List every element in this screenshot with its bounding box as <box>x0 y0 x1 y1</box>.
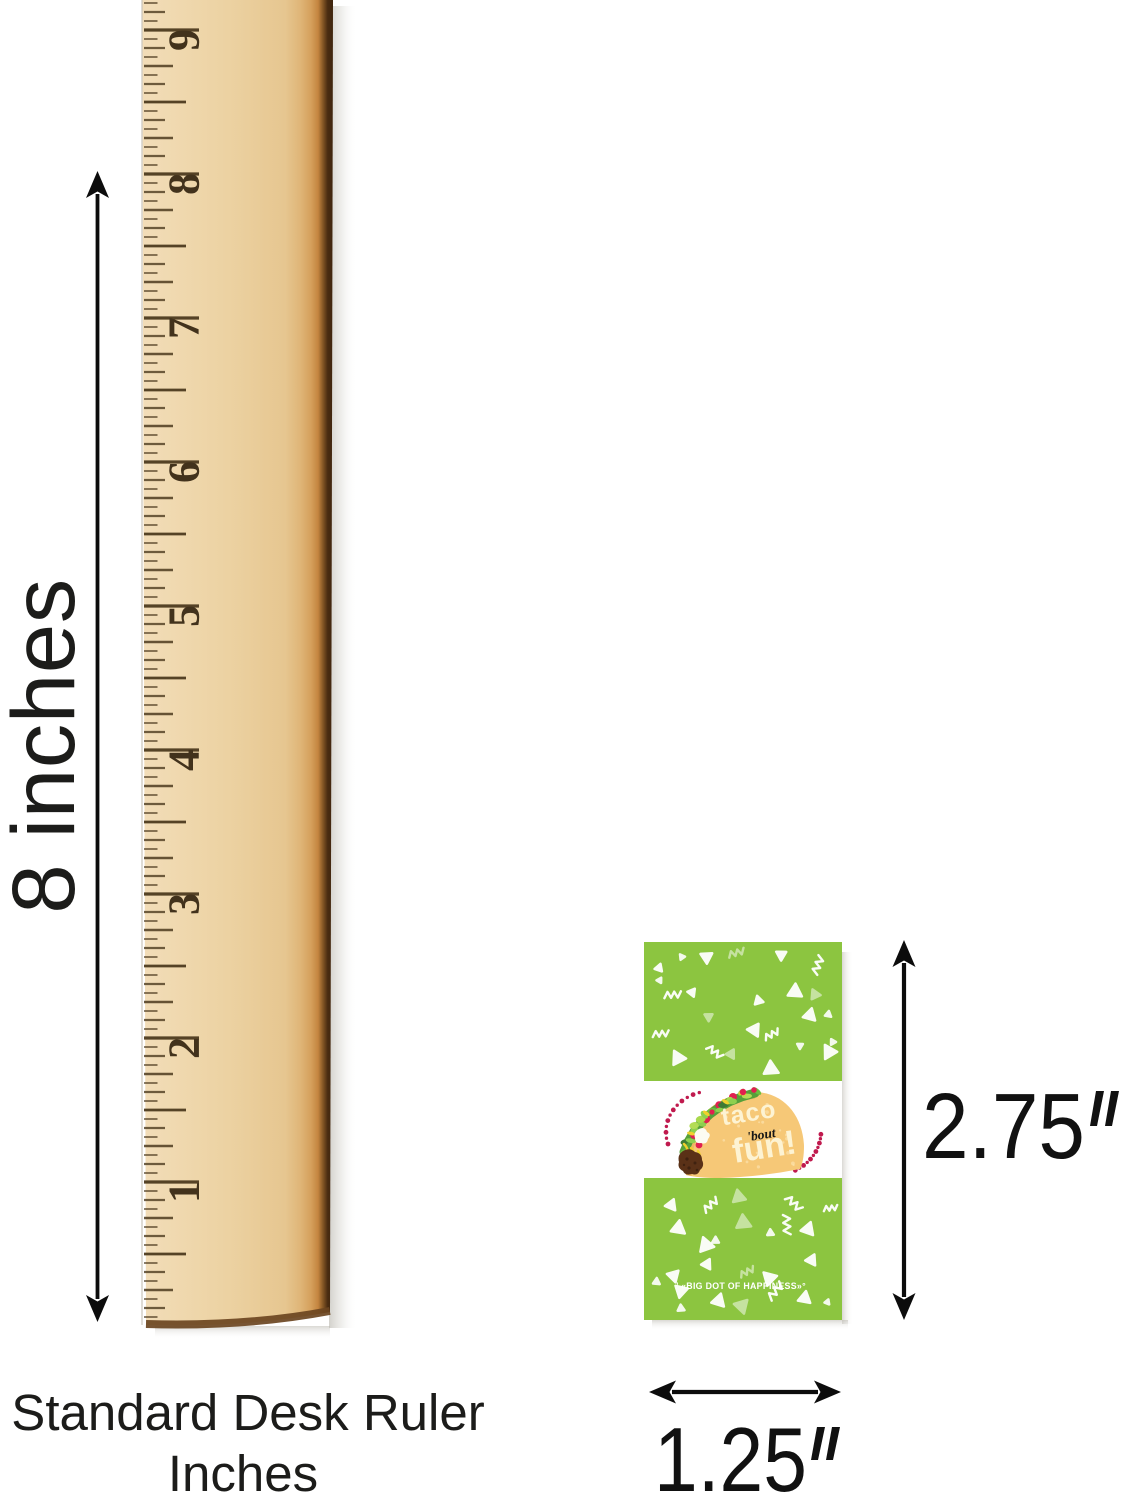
svg-text:8 inches: 8 inches <box>0 578 93 914</box>
svg-text:’ «BIG DOT OF HAPPINESS»°: ’ «BIG DOT OF HAPPINESS»° <box>676 1281 806 1291</box>
svg-text:1: 1 <box>160 1181 209 1203</box>
svg-text:9: 9 <box>160 29 209 51</box>
svg-text:4: 4 <box>160 749 209 771</box>
svg-text:1.25: 1.25 <box>654 1410 807 1500</box>
svg-text:3: 3 <box>160 893 209 915</box>
svg-text:Standard Desk Ruler: Standard Desk Ruler <box>11 1384 484 1441</box>
svg-text:2: 2 <box>160 1037 209 1059</box>
svg-text:Inches: Inches <box>168 1445 318 1500</box>
svg-text:2.75: 2.75 <box>922 1074 1085 1178</box>
svg-text:8: 8 <box>160 173 209 195</box>
svg-text:6: 6 <box>160 461 209 483</box>
svg-text:7: 7 <box>160 317 209 339</box>
svg-text:5: 5 <box>160 605 209 627</box>
